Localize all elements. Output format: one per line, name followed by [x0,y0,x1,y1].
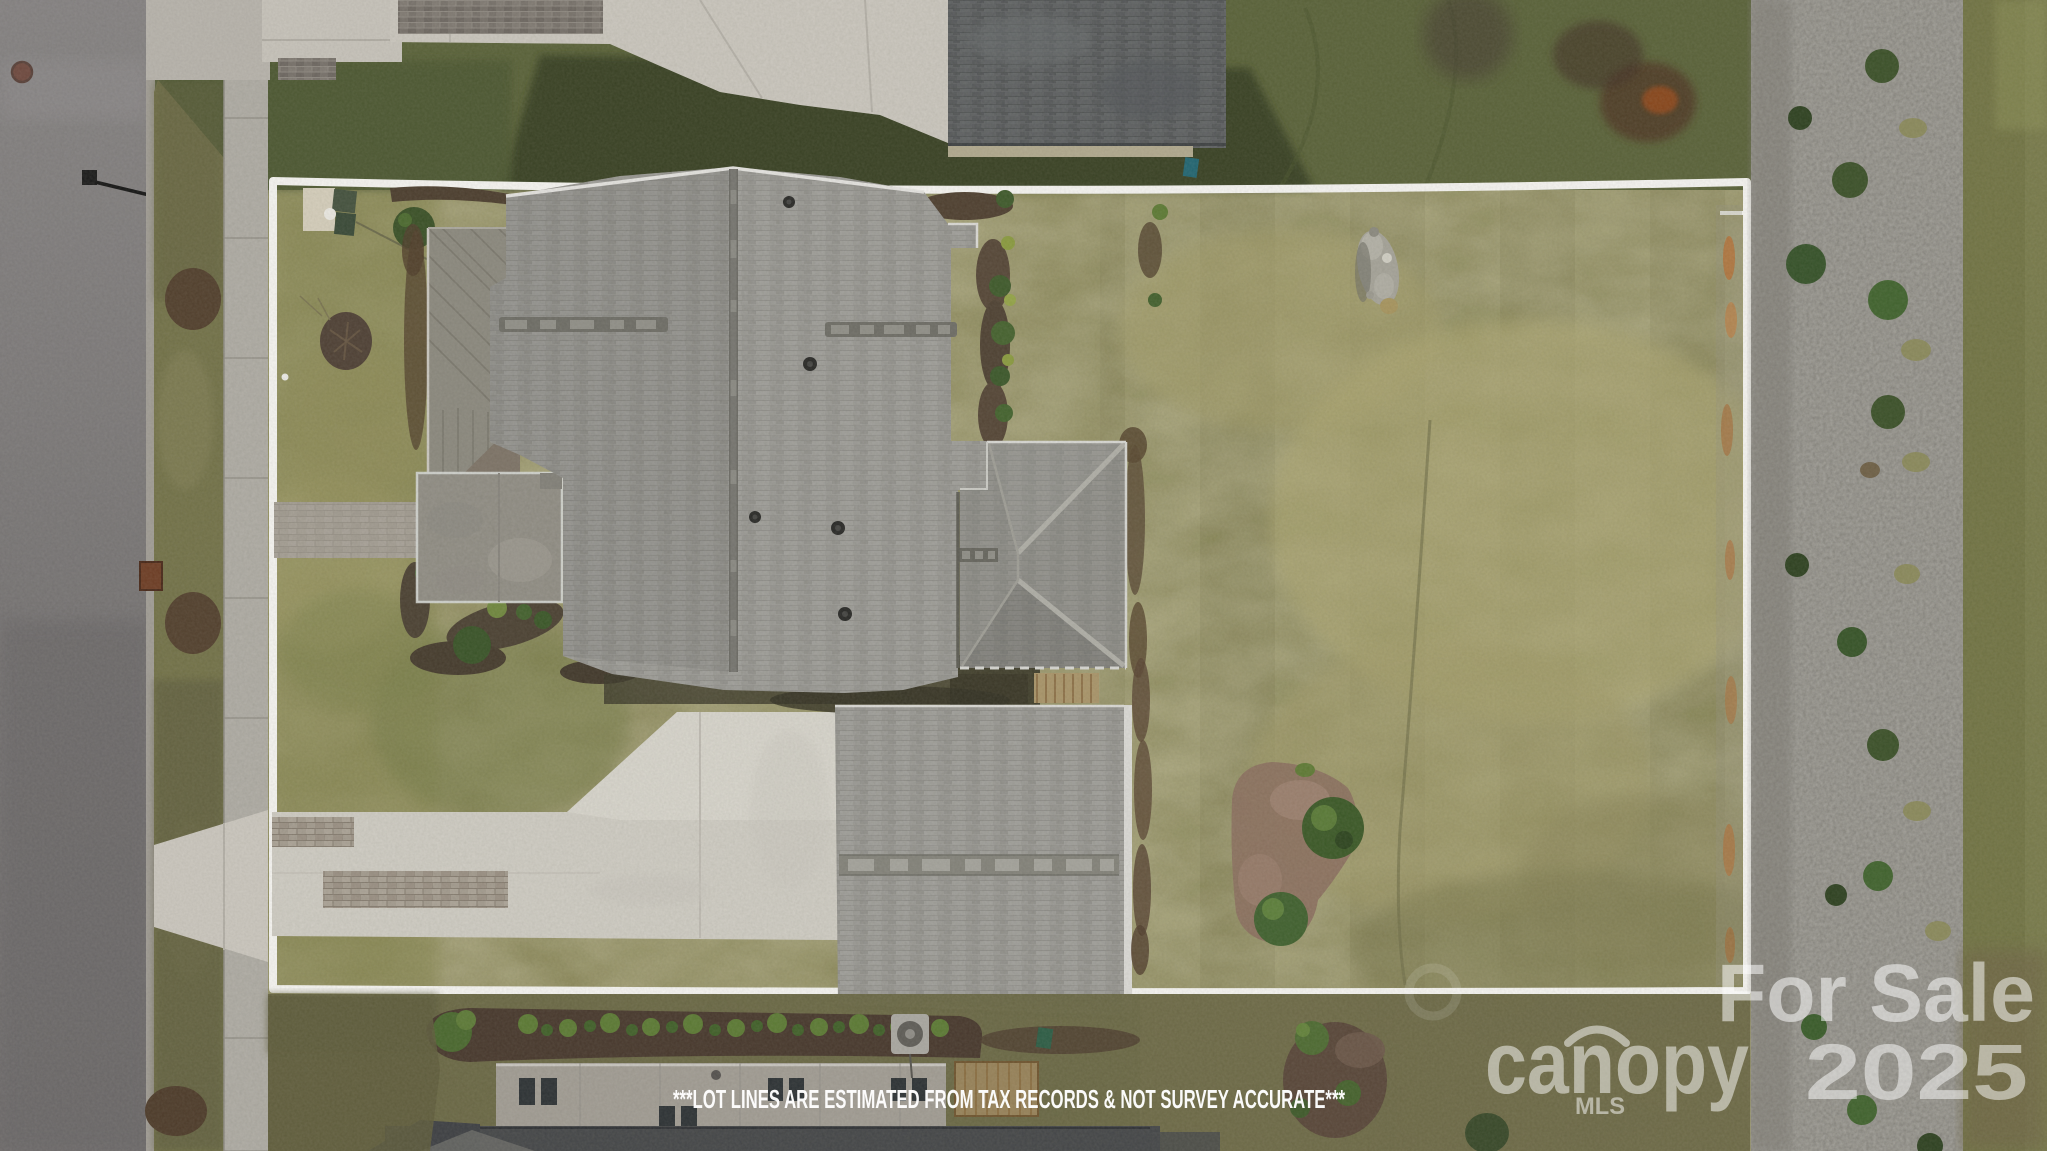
svg-text:***LOT LINES ARE ESTIMATED FRO: ***LOT LINES ARE ESTIMATED FROM TAX RECO… [673,1084,1346,1114]
svg-text:2025: 2025 [1805,1027,2028,1116]
svg-text:MLS: MLS [1575,1093,1625,1120]
svg-text:For Sale: For Sale [1717,948,2035,1039]
